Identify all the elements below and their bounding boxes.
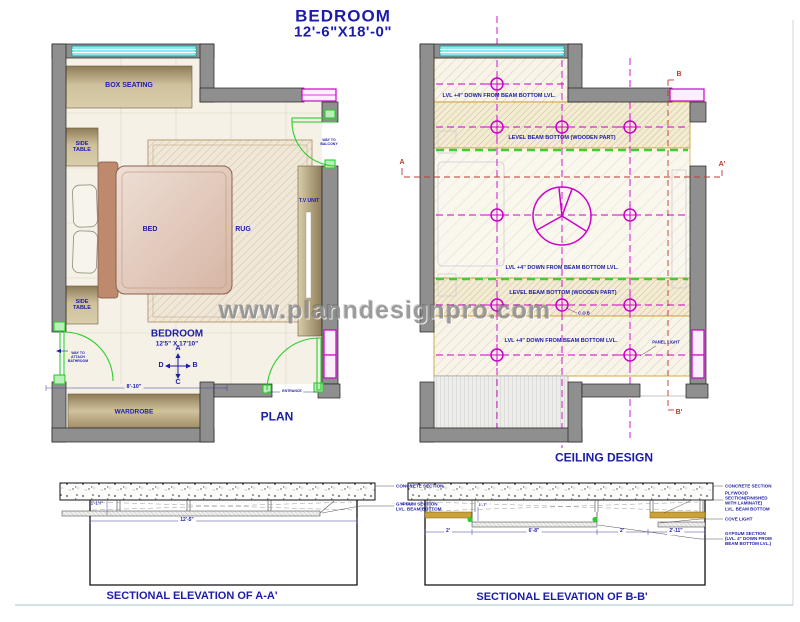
cove-light-dot: [467, 517, 472, 522]
gypsum-strip: [472, 522, 597, 527]
section-a-drawing: [60, 483, 394, 585]
ceiling-hangers: [117, 500, 271, 512]
side-table-bottom-shape: [66, 286, 98, 324]
gypsum-strip: [658, 522, 705, 527]
ceiling-window-top: [440, 46, 564, 56]
watermark: www.planndesignpro.com: [219, 297, 551, 326]
side-table-top-shape: [66, 128, 98, 166]
gypsum-strip: [62, 511, 320, 516]
ceiling-plan-drawing: [402, 16, 724, 448]
window-top-left: [72, 46, 196, 56]
drawing-sheet: BEDROOM 12'-6"X18'-0" BOX SEATING SIDE T…: [0, 0, 800, 622]
window-top-right-magenta: [302, 89, 336, 101]
pillow: [72, 231, 97, 274]
window-right-magenta: [324, 330, 336, 378]
ceiling-hangers: [427, 500, 703, 512]
pillow: [72, 185, 97, 228]
box-seating-shape: [66, 66, 192, 108]
cove-light-dot: [592, 517, 597, 522]
plywood-strip: [425, 512, 472, 518]
wardrobe-shape: [68, 394, 200, 428]
perspective-lines: [430, 502, 698, 511]
concrete-slab: [60, 483, 375, 500]
ceiling-wardrobe-area: [434, 376, 568, 428]
floor-plan-drawing: [46, 44, 340, 442]
concrete-slab: [408, 483, 713, 500]
plywood-strip: [650, 512, 705, 518]
section-b-drawing: [408, 483, 723, 585]
perspective-lines: [92, 502, 352, 510]
